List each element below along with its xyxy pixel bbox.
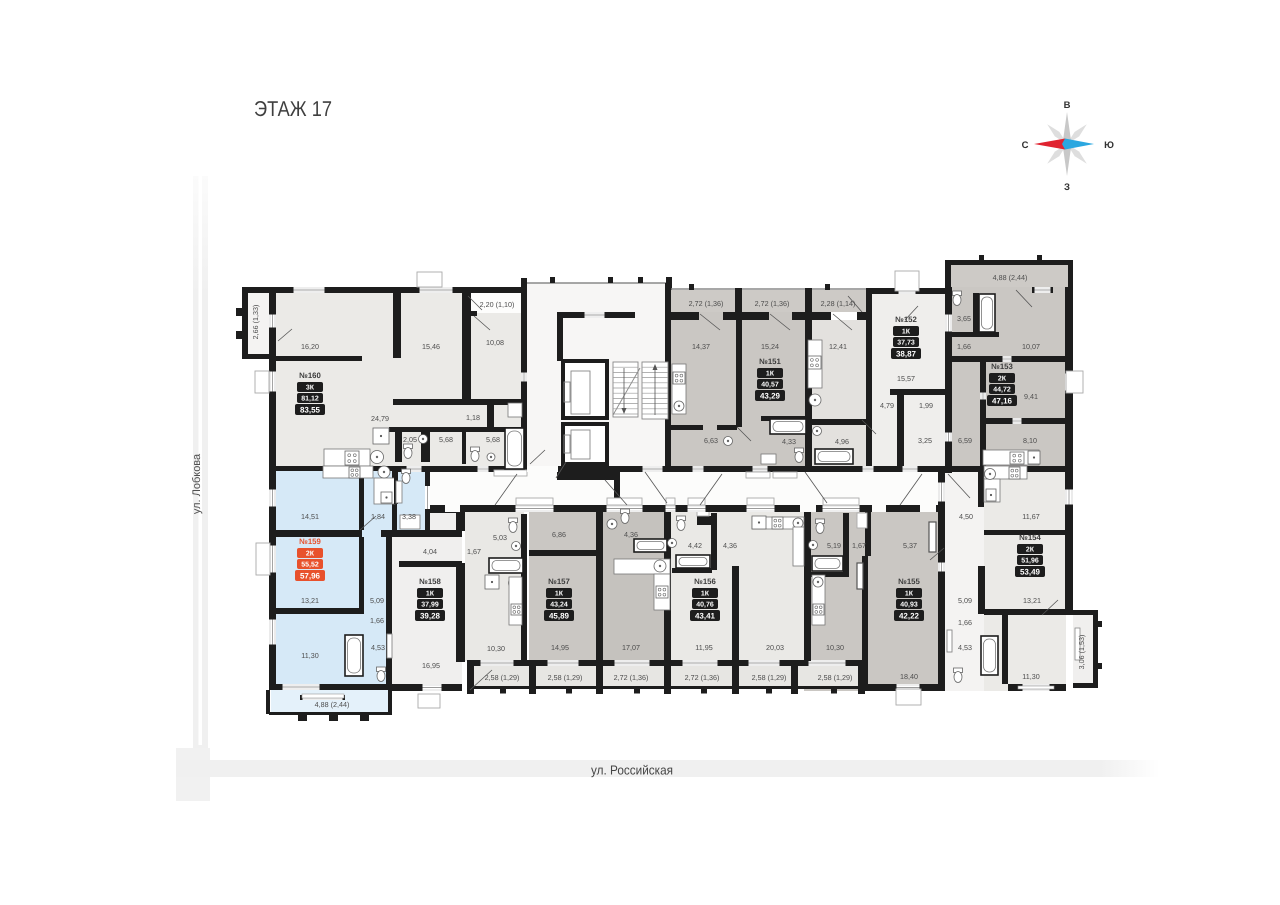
svg-text:1,67: 1,67 [467, 547, 481, 556]
svg-text:3К: 3К [306, 385, 315, 392]
svg-text:43,29: 43,29 [760, 392, 781, 401]
svg-text:Ю: Ю [1104, 140, 1114, 151]
svg-text:2,58 (1,29): 2,58 (1,29) [752, 673, 787, 682]
svg-text:2К: 2К [1026, 547, 1035, 554]
svg-text:5,68: 5,68 [439, 435, 453, 444]
svg-text:43,24: 43,24 [550, 602, 568, 609]
svg-text:40,76: 40,76 [696, 602, 714, 609]
svg-text:10,08: 10,08 [486, 338, 504, 347]
svg-text:5,09: 5,09 [958, 596, 972, 605]
svg-text:4,53: 4,53 [371, 643, 385, 652]
svg-text:2,05: 2,05 [403, 435, 417, 444]
svg-text:2,58 (1,29): 2,58 (1,29) [548, 673, 583, 682]
svg-text:5,68: 5,68 [486, 435, 500, 444]
svg-text:5,37: 5,37 [903, 541, 917, 550]
svg-text:1,18: 1,18 [466, 413, 480, 422]
svg-text:16,20: 16,20 [301, 342, 319, 351]
svg-text:81,12: 81,12 [301, 396, 319, 403]
svg-text:2К: 2К [998, 376, 1007, 383]
svg-text:4,04: 4,04 [423, 547, 437, 556]
svg-text:1К: 1К [902, 329, 911, 336]
svg-text:№160: №160 [299, 371, 321, 380]
svg-text:№159: №159 [299, 537, 321, 546]
svg-text:1К: 1К [426, 591, 435, 598]
svg-text:6,59: 6,59 [958, 436, 972, 445]
svg-text:83,55: 83,55 [300, 406, 321, 415]
svg-text:4,53: 4,53 [958, 643, 972, 652]
svg-text:44,72: 44,72 [993, 387, 1011, 394]
svg-text:43,41: 43,41 [695, 612, 716, 621]
svg-text:37,99: 37,99 [421, 602, 439, 609]
svg-text:16,95: 16,95 [422, 661, 440, 670]
svg-text:20,03: 20,03 [766, 643, 784, 652]
svg-text:2,72 (1,36): 2,72 (1,36) [614, 673, 649, 682]
svg-text:ЭТАЖ 17: ЭТАЖ 17 [254, 97, 332, 121]
svg-text:1,99: 1,99 [919, 401, 933, 410]
svg-text:№154: №154 [1019, 533, 1041, 542]
svg-text:45,89: 45,89 [549, 612, 570, 621]
svg-text:14,37: 14,37 [692, 342, 710, 351]
svg-text:3,38: 3,38 [402, 512, 416, 521]
svg-text:10,30: 10,30 [826, 643, 844, 652]
svg-text:40,57: 40,57 [761, 382, 779, 389]
svg-text:2,20 (1,10): 2,20 (1,10) [480, 300, 515, 309]
svg-text:4,42: 4,42 [688, 541, 702, 550]
svg-text:1К: 1К [701, 591, 710, 598]
svg-text:ул. Лобкова: ул. Лобкова [191, 453, 203, 514]
svg-text:ул. Российская: ул. Российская [591, 763, 673, 778]
svg-text:14,95: 14,95 [551, 643, 569, 652]
svg-text:В: В [1064, 100, 1071, 111]
svg-text:15,24: 15,24 [761, 342, 779, 351]
svg-text:6,63: 6,63 [704, 436, 718, 445]
svg-text:2,72 (1,36): 2,72 (1,36) [755, 299, 790, 308]
svg-text:8,10: 8,10 [1023, 436, 1037, 445]
svg-text:3,06 (1,53): 3,06 (1,53) [1077, 635, 1086, 670]
svg-text:1,66: 1,66 [370, 616, 384, 625]
svg-text:55,52: 55,52 [301, 562, 319, 569]
svg-text:2,58 (1,29): 2,58 (1,29) [485, 673, 520, 682]
svg-text:2,72 (1,36): 2,72 (1,36) [685, 673, 720, 682]
svg-text:9,41: 9,41 [1024, 392, 1038, 401]
svg-text:18,40: 18,40 [900, 672, 918, 681]
svg-text:№152: №152 [895, 315, 917, 324]
svg-text:24,79: 24,79 [371, 414, 389, 423]
svg-text:1К: 1К [555, 591, 564, 598]
svg-text:11,95: 11,95 [695, 643, 712, 652]
svg-text:37,73: 37,73 [897, 340, 915, 347]
svg-text:2,28 (1,14): 2,28 (1,14) [821, 299, 856, 308]
svg-text:4,88 (2,44): 4,88 (2,44) [993, 273, 1028, 282]
svg-text:51,96: 51,96 [1021, 558, 1039, 565]
svg-text:№155: №155 [898, 577, 920, 586]
svg-text:13,21: 13,21 [301, 596, 319, 605]
svg-text:1,66: 1,66 [958, 618, 972, 627]
svg-text:39,28: 39,28 [420, 612, 441, 621]
svg-text:15,46: 15,46 [422, 342, 440, 351]
svg-text:4,88 (2,44): 4,88 (2,44) [315, 700, 350, 709]
svg-text:5,03: 5,03 [493, 533, 507, 542]
svg-text:42,22: 42,22 [899, 612, 920, 621]
svg-text:17,07: 17,07 [622, 643, 640, 652]
svg-text:№151: №151 [759, 357, 781, 366]
svg-text:6,86: 6,86 [552, 530, 566, 539]
svg-text:4,50: 4,50 [959, 512, 973, 521]
svg-text:10,30: 10,30 [487, 644, 505, 653]
svg-text:5,09: 5,09 [370, 596, 384, 605]
svg-text:1,84: 1,84 [371, 512, 385, 521]
svg-text:3,25: 3,25 [918, 436, 932, 445]
svg-text:13,21: 13,21 [1023, 596, 1041, 605]
svg-text:38,87: 38,87 [896, 350, 917, 359]
svg-text:5,19: 5,19 [827, 541, 841, 550]
svg-text:4,79: 4,79 [880, 401, 894, 410]
svg-text:2К: 2К [306, 551, 315, 558]
svg-text:1К: 1К [905, 591, 914, 598]
svg-text:1,66: 1,66 [957, 342, 971, 351]
svg-text:4,33: 4,33 [782, 437, 796, 446]
svg-text:40,93: 40,93 [900, 602, 918, 609]
svg-text:11,30: 11,30 [1022, 672, 1039, 681]
svg-text:14,51: 14,51 [301, 512, 319, 521]
svg-text:№158: №158 [419, 577, 441, 586]
svg-text:2,72 (1,36): 2,72 (1,36) [689, 299, 724, 308]
svg-text:3,65: 3,65 [957, 314, 971, 323]
svg-text:З: З [1064, 182, 1070, 193]
svg-text:57,96: 57,96 [300, 572, 321, 581]
svg-text:53,49: 53,49 [1020, 568, 1041, 577]
svg-text:№156: №156 [694, 577, 716, 586]
svg-text:47,16: 47,16 [992, 397, 1013, 406]
svg-text:10,07: 10,07 [1022, 342, 1040, 351]
svg-text:4,36: 4,36 [624, 530, 638, 539]
svg-text:12,41: 12,41 [829, 342, 847, 351]
svg-text:1,67: 1,67 [852, 541, 866, 550]
svg-text:11,30: 11,30 [301, 651, 318, 660]
svg-text:2,58 (1,29): 2,58 (1,29) [818, 673, 853, 682]
svg-text:2,66 (1,33): 2,66 (1,33) [251, 305, 260, 340]
svg-text:4,96: 4,96 [835, 437, 849, 446]
svg-text:№153: №153 [991, 362, 1013, 371]
svg-text:С: С [1022, 140, 1029, 151]
svg-text:4,36: 4,36 [723, 541, 737, 550]
svg-text:15,57: 15,57 [897, 374, 915, 383]
svg-text:1К: 1К [766, 371, 775, 378]
svg-text:11,67: 11,67 [1022, 512, 1039, 521]
svg-text:№157: №157 [548, 577, 570, 586]
